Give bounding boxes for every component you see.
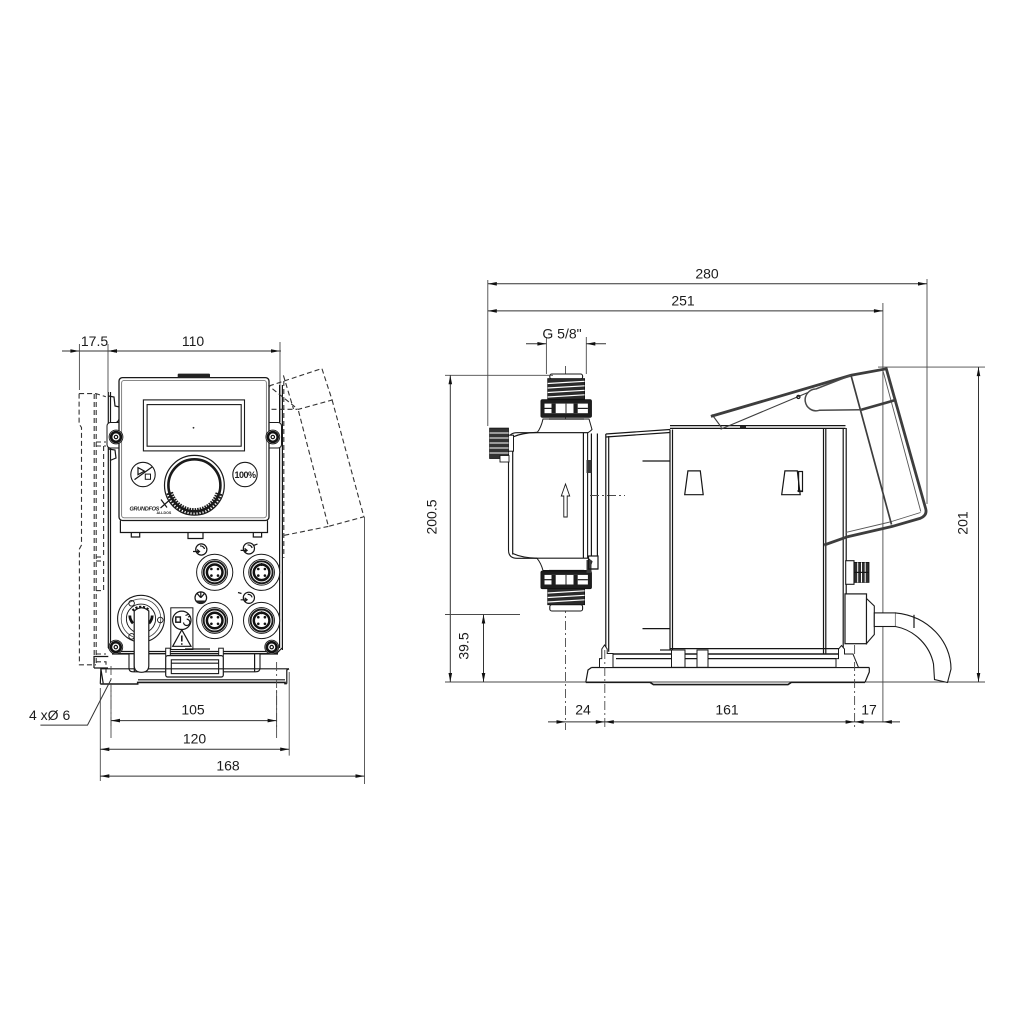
svg-text:24: 24 xyxy=(575,702,591,718)
svg-text:200.5: 200.5 xyxy=(424,499,440,534)
svg-text:251: 251 xyxy=(671,293,695,309)
svg-text:105: 105 xyxy=(181,702,205,718)
svg-text:100%: 100% xyxy=(234,470,256,480)
svg-text:110: 110 xyxy=(182,333,205,349)
svg-text:G 5/8": G 5/8" xyxy=(542,326,581,342)
svg-text:4 xØ 6: 4 xØ 6 xyxy=(29,707,70,723)
svg-text:17: 17 xyxy=(861,702,877,718)
svg-text:161: 161 xyxy=(715,702,739,718)
svg-text:201: 201 xyxy=(955,511,971,535)
svg-text:17.5: 17.5 xyxy=(81,333,108,349)
svg-text:ALLDOS: ALLDOS xyxy=(157,511,172,515)
svg-text:GRUNDFOS: GRUNDFOS xyxy=(130,506,160,512)
svg-text:39.5: 39.5 xyxy=(456,632,472,659)
svg-text:120: 120 xyxy=(183,731,207,747)
svg-text:280: 280 xyxy=(695,266,719,282)
svg-text:168: 168 xyxy=(216,757,240,773)
